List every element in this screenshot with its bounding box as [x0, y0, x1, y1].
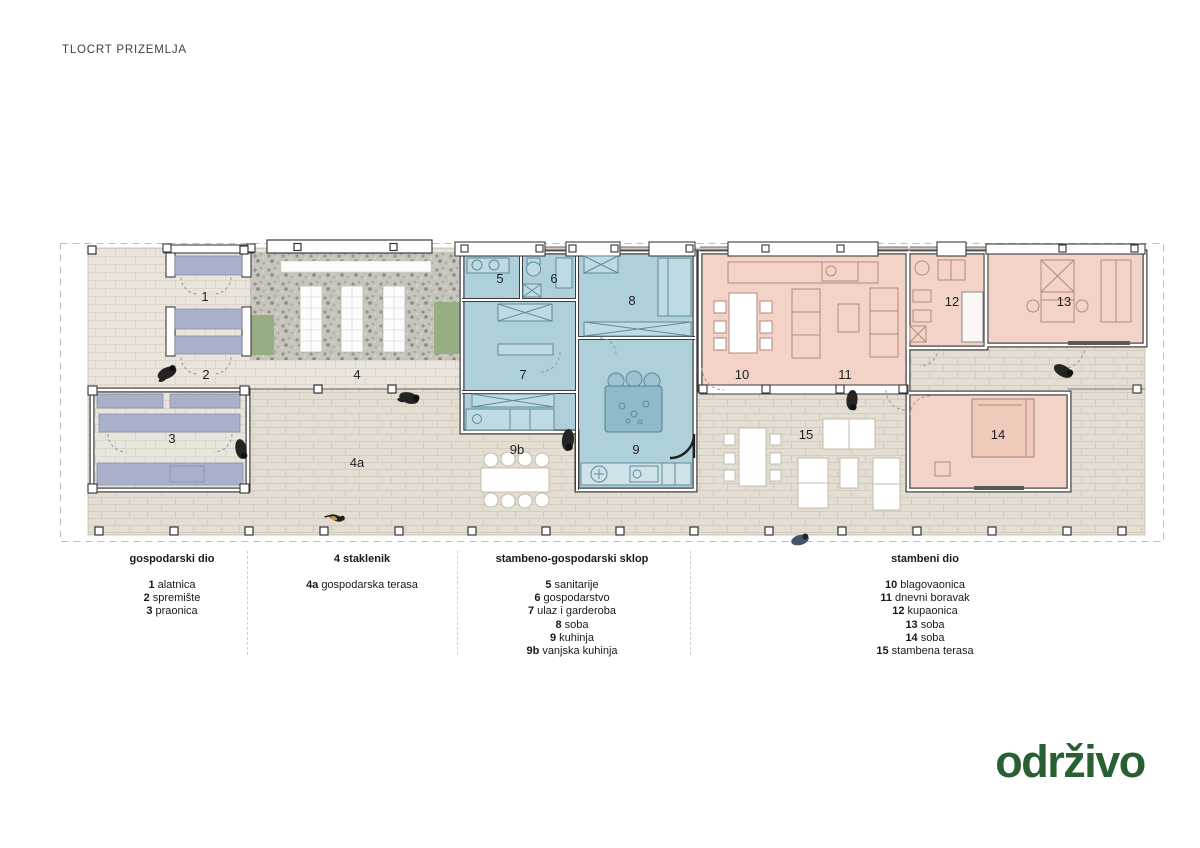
room-label-2: 2	[202, 367, 209, 382]
room-label-15: 15	[799, 427, 813, 442]
legend-item: 11dnevni boravak	[825, 592, 1025, 605]
room-label-12: 12	[945, 294, 959, 309]
legend-item: 4agospodarska terasa	[282, 579, 442, 592]
room-label-11: 11	[838, 367, 852, 382]
legend-item: 14soba	[825, 632, 1025, 645]
legend-title: 4 staklenik	[282, 553, 442, 565]
legend-title: gospodarski dio	[92, 553, 252, 565]
room-label-10: 10	[735, 367, 749, 382]
legend-separator	[690, 551, 691, 655]
room-label-1: 1	[201, 289, 208, 304]
legend-item: 8soba	[472, 619, 672, 632]
legend-item: 15stambena terasa	[825, 645, 1025, 658]
legend-item: 7ulaz i garderoba	[472, 605, 672, 618]
legend-item: 6gospodarstvo	[472, 592, 672, 605]
room-label-8: 8	[628, 293, 635, 308]
legend-item: 1alatnica	[92, 579, 252, 592]
room-label-9: 9	[632, 442, 639, 457]
legend-separator	[457, 551, 458, 655]
blue-top-wall	[455, 242, 695, 256]
legend-stambeno-gospodarski: stambeno-gospodarski sklop 5sanitarije 6…	[472, 553, 672, 658]
floor-plan-drawing: 1 2 3 4 4a 5 6 7 8 9 9b 10 11 12 13 14 1…	[0, 0, 1200, 848]
legend-item: 12kupaonica	[825, 605, 1025, 618]
room-label-4: 4	[353, 367, 360, 382]
legend-item: 3praonica	[92, 605, 252, 618]
room-label-9b: 9b	[510, 442, 524, 457]
legend-item: 13soba	[825, 619, 1025, 632]
room-label-13: 13	[1057, 294, 1071, 309]
room-label-7: 7	[519, 367, 526, 382]
odrzivo-logo: održivo	[985, 736, 1155, 788]
legend-title: stambeni dio	[825, 553, 1025, 565]
room-label-6: 6	[550, 271, 557, 286]
legend-item: 10blagovaonica	[825, 579, 1025, 592]
floor-plan-page: TLOCRT PRIZEMLJA	[0, 0, 1200, 848]
room-label-5: 5	[496, 271, 503, 286]
legend-item: 9bvanjska kuhinja	[472, 645, 672, 658]
legend-item: 2spremište	[92, 592, 252, 605]
legend-title: stambeno-gospodarski sklop	[472, 553, 672, 565]
room-label-4a: 4a	[350, 455, 365, 470]
legend-item: 9kuhinja	[472, 632, 672, 645]
room-label-14: 14	[991, 427, 1005, 442]
room-label-3: 3	[168, 431, 175, 446]
legend-staklenik: 4 staklenik 4agospodarska terasa	[282, 553, 442, 592]
legend-gospodarski-dio: gospodarski dio 1alatnica 2spremište 3pr…	[92, 553, 252, 619]
legend-stambeni-dio: stambeni dio 10blagovaonica 11dnevni bor…	[825, 553, 1025, 658]
legend-item: 5sanitarije	[472, 579, 672, 592]
planting-beds	[300, 286, 405, 352]
